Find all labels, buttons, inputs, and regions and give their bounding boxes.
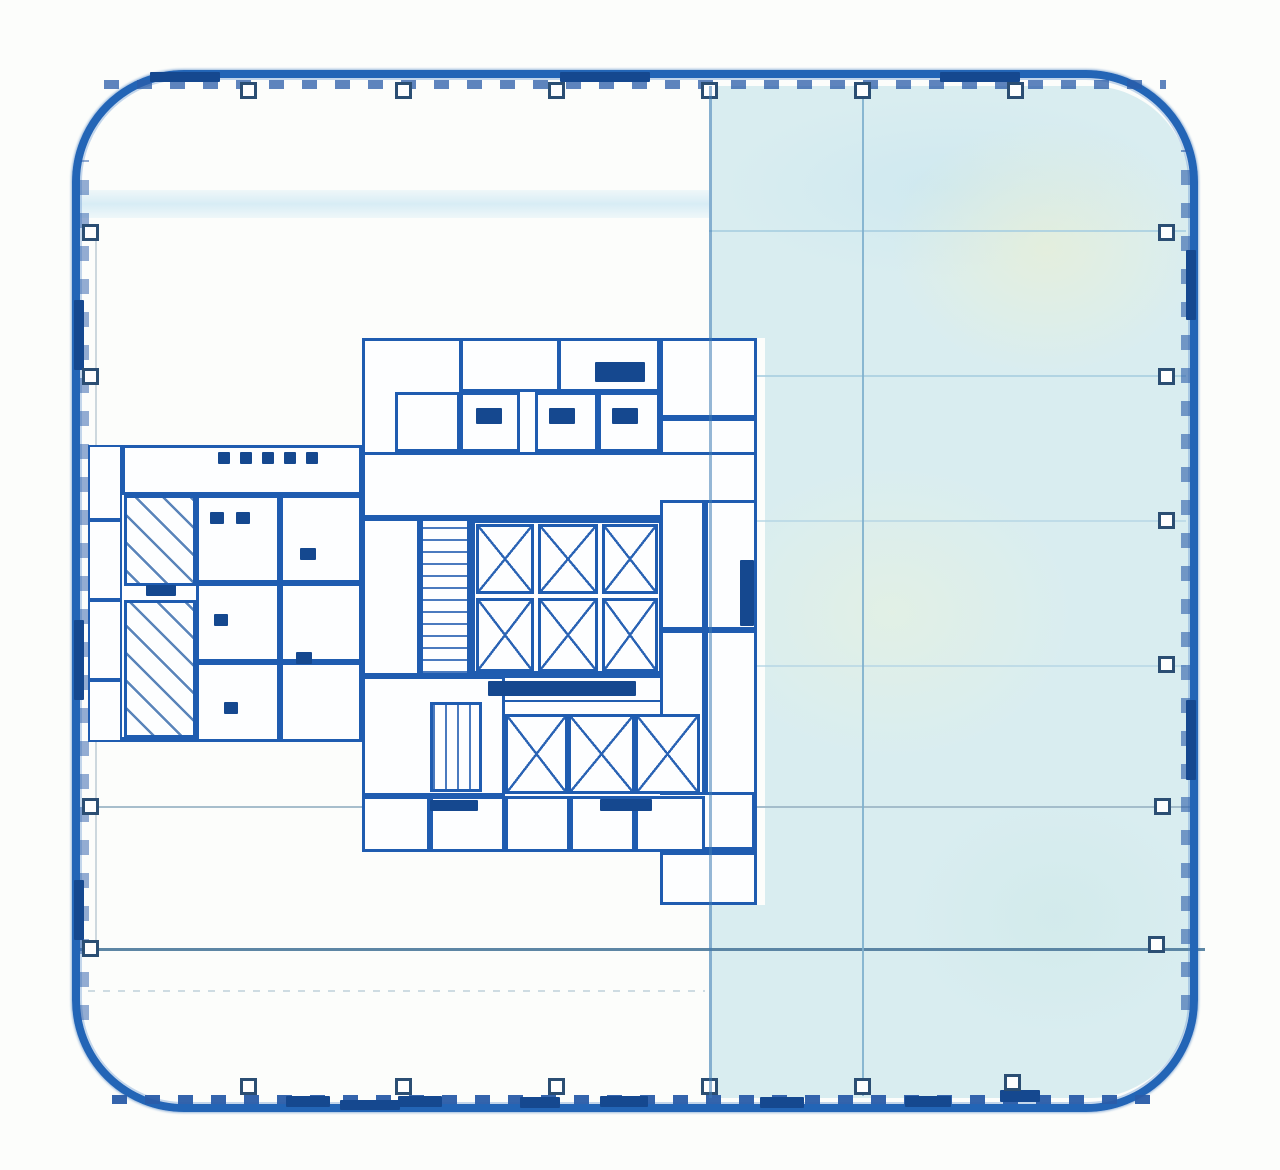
column-marker: [1158, 512, 1175, 529]
elevator-cell: [538, 524, 598, 594]
column-marker: [1007, 82, 1024, 99]
dark-accent: [240, 452, 252, 464]
elevator-cell: [602, 524, 658, 594]
floor-plan-canvas: [0, 0, 1280, 1170]
dark-accent: [214, 614, 228, 626]
core-room: [280, 662, 362, 742]
core-room: [88, 520, 122, 600]
dark-accent: [612, 408, 638, 424]
column-marker: [82, 224, 99, 241]
column-marker: [1158, 368, 1175, 385]
stair-run: [420, 518, 470, 676]
dark-accent: [306, 452, 318, 464]
dark-accent: [600, 1096, 648, 1107]
core-room: [460, 338, 560, 392]
dark-accent: [236, 512, 250, 524]
elevator-cell: [602, 598, 658, 672]
dark-accent: [218, 452, 230, 464]
core-room: [88, 445, 122, 520]
dark-accent: [476, 408, 502, 424]
stair-run: [430, 702, 482, 792]
column-marker: [1148, 936, 1165, 953]
column-marker: [1154, 798, 1171, 815]
dark-accent: [430, 800, 478, 811]
column-marker: [240, 1078, 257, 1095]
dark-accent: [1186, 700, 1196, 780]
column-marker: [395, 82, 412, 99]
ramp-hatch: [124, 495, 196, 738]
dark-accent: [146, 585, 176, 596]
core-room: [280, 495, 362, 583]
elevator-cell: [476, 524, 534, 594]
column-marker: [854, 1078, 871, 1095]
elevator-cell: [505, 714, 568, 794]
dark-accent: [210, 512, 224, 524]
dark-accent: [286, 1096, 330, 1107]
dark-accent: [340, 1100, 400, 1110]
dark-accent: [1000, 1090, 1040, 1102]
column-marker: [548, 82, 565, 99]
dark-accent: [488, 681, 636, 696]
dark-accent: [740, 560, 754, 626]
column-marker: [1158, 656, 1175, 673]
dark-accent: [74, 300, 84, 370]
column-marker: [82, 798, 99, 815]
dark-accent: [1186, 250, 1196, 320]
core-room: [660, 500, 705, 630]
dark-accent: [300, 548, 316, 560]
core-room: [395, 392, 460, 452]
dark-accent: [600, 799, 652, 811]
dark-accent: [560, 72, 650, 82]
elevator-cell: [635, 714, 700, 794]
core-room: [362, 796, 430, 852]
dark-accent: [595, 362, 645, 382]
dark-accent: [760, 1097, 804, 1108]
elevator-cell: [538, 598, 598, 672]
column-marker: [548, 1078, 565, 1095]
core-room: [196, 495, 280, 583]
core-room: [280, 583, 362, 662]
dark-accent: [549, 408, 575, 424]
dark-accent: [284, 452, 296, 464]
column-marker: [240, 82, 257, 99]
dark-accent: [905, 1096, 951, 1107]
column-marker: [82, 368, 99, 385]
column-marker: [395, 1078, 412, 1095]
dark-accent: [74, 880, 84, 940]
core-room: [196, 583, 280, 662]
core-room: [362, 518, 420, 676]
elevator-cell: [476, 598, 534, 672]
column-marker: [82, 940, 99, 957]
dark-accent: [262, 452, 274, 464]
dark-accent: [150, 72, 220, 82]
dark-accent: [940, 72, 1020, 82]
elevator-cell: [568, 714, 635, 794]
core-room: [505, 796, 570, 852]
dark-accent: [520, 1097, 560, 1108]
core-room: [88, 600, 122, 680]
column-marker: [854, 82, 871, 99]
column-marker: [1004, 1074, 1021, 1091]
dark-accent: [224, 702, 238, 714]
core-room: [196, 662, 280, 742]
core-room: [705, 630, 757, 795]
dark-accent: [74, 620, 84, 700]
grid-line-vertical-overlay: [709, 86, 712, 1098]
dark-accent: [398, 1096, 442, 1107]
core-room: [88, 680, 122, 742]
dark-accent: [296, 652, 312, 664]
column-marker: [1158, 224, 1175, 241]
